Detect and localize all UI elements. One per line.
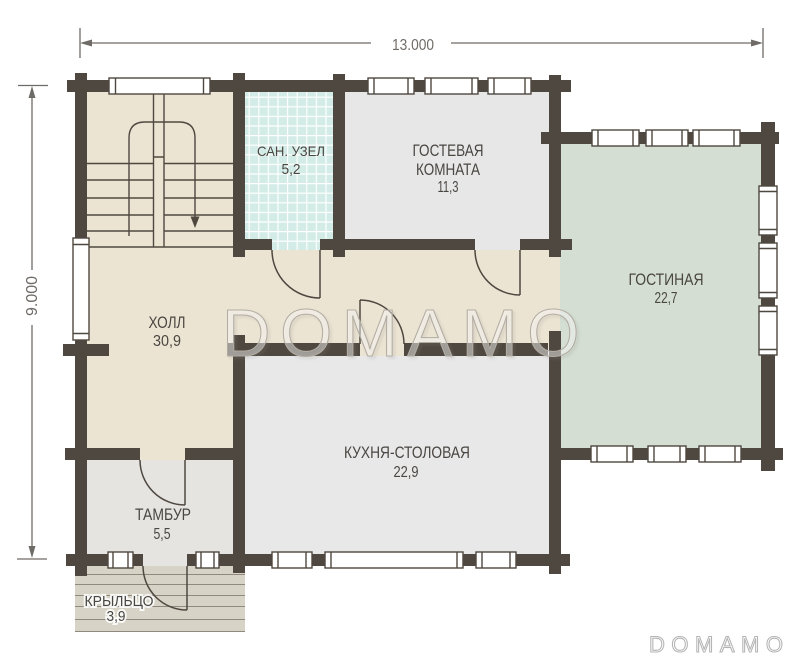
svg-text:3,9: 3,9: [107, 608, 126, 625]
svg-text:9.000: 9.000: [24, 276, 41, 316]
svg-text:13.000: 13.000: [392, 37, 434, 54]
svg-text:DOMAMO: DOMAMO: [222, 296, 589, 371]
svg-text:DOMAMO: DOMAMO: [649, 632, 789, 657]
svg-text:5,2: 5,2: [282, 161, 301, 178]
svg-text:5,5: 5,5: [154, 526, 171, 543]
svg-text:САН. УЗЕЛ: САН. УЗЕЛ: [257, 143, 325, 159]
svg-text:КУХНЯ-СТОЛОВАЯ: КУХНЯ-СТОЛОВАЯ: [344, 443, 470, 462]
svg-text:КОМНАТА: КОМНАТА: [416, 160, 481, 179]
svg-text:11,3: 11,3: [438, 179, 459, 196]
svg-text:22,9: 22,9: [394, 464, 419, 481]
svg-text:ГОСТИНАЯ: ГОСТИНАЯ: [629, 270, 704, 289]
svg-text:22,7: 22,7: [655, 290, 678, 307]
svg-text:ТАМБУР: ТАМБУР: [135, 505, 191, 524]
svg-text:ГОСТЕВАЯ: ГОСТЕВАЯ: [413, 141, 484, 160]
svg-text:30,9: 30,9: [153, 333, 181, 350]
svg-text:ХОЛЛ: ХОЛЛ: [149, 313, 186, 332]
